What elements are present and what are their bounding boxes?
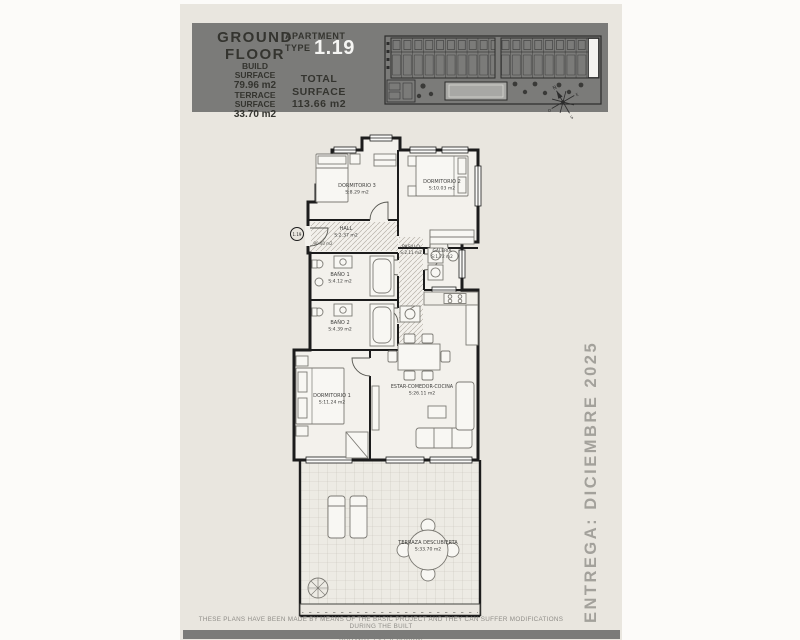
- room-area-dormitorio2: S:10.03 m2: [429, 186, 456, 192]
- total-surface-label2: SURFACE: [281, 87, 357, 98]
- room-label-dormitorio2: DORMITORIO 2: [423, 179, 461, 185]
- terrace-surface-value: 33.70 m2: [201, 110, 309, 120]
- highlighted-unit: [589, 39, 599, 78]
- site-unit-block-left: [391, 38, 495, 78]
- site-unit-block-right: [501, 38, 599, 78]
- room-area-pasillo: S:2.11 m2: [400, 250, 422, 255]
- disclaimer-line1: THESE PLANS HAVE BEEN MADE BY MEANS OF T…: [185, 616, 577, 630]
- room-area-bano1: S:4.12 m2: [328, 279, 352, 285]
- room-label-bano2: BAÑO 2: [330, 319, 349, 326]
- room-label-hall: HALL: [340, 226, 353, 232]
- total-surface-block: TOTAL SURFACE 113.66 m2: [281, 74, 357, 112]
- room-label-bano1: BAÑO 1: [330, 271, 349, 278]
- room-label-dormitorio1: DORMITORIO 1: [313, 393, 351, 399]
- entrance-opening: [305, 226, 311, 246]
- room-area-estar: S:26.11 m2: [409, 391, 436, 397]
- compass-s-label: S: [569, 114, 574, 120]
- bottom-bar: [183, 630, 620, 639]
- entry-level-note: 90.40 m2: [313, 241, 333, 246]
- room-area-terraza: S:33.70 m2: [415, 547, 442, 553]
- total-surface-value: 113.66 m2: [281, 99, 357, 110]
- compass-e-label: E: [575, 91, 580, 97]
- apartment-number: 1.19: [314, 38, 355, 58]
- room-area-galeria: S:1.72 m2: [431, 254, 453, 259]
- apartment-floor-plan: 1.19 DORMITORIO 3 S:8.29 m2 DORMITORIO 2…: [282, 130, 482, 624]
- site-key-plan: N E S O: [383, 28, 608, 122]
- room-area-dormitorio3: S:8.29 m2: [345, 190, 369, 196]
- floor-plan-sheet: GROUND FLOOR BUILD SURFACE 79.96 m2 TERR…: [0, 0, 800, 640]
- room-label-terraza: TERRAZA DESCUBIERTA: [397, 540, 458, 546]
- delivery-note: ENTREGA: DICIEMBRE 2025: [577, 365, 605, 623]
- room-label-estar: ESTAR-COMEDOR-COCINA: [391, 384, 454, 390]
- room-label-dormitorio3: DORMITORIO 3: [338, 183, 376, 189]
- room-area-bano2: S:4.39 m2: [328, 327, 352, 333]
- compass-o-label: O: [547, 107, 552, 113]
- total-surface-label1: TOTAL: [281, 74, 357, 85]
- site-parking-dots: [387, 42, 390, 69]
- unit-marker-label: 1.19: [293, 232, 302, 237]
- unit-marker: 1.19: [291, 228, 304, 241]
- room-area-dormitorio1: S:11.24 m2: [319, 400, 346, 406]
- site-common-areas: [387, 80, 415, 102]
- room-area-hall: S:2.37 m2: [334, 233, 358, 239]
